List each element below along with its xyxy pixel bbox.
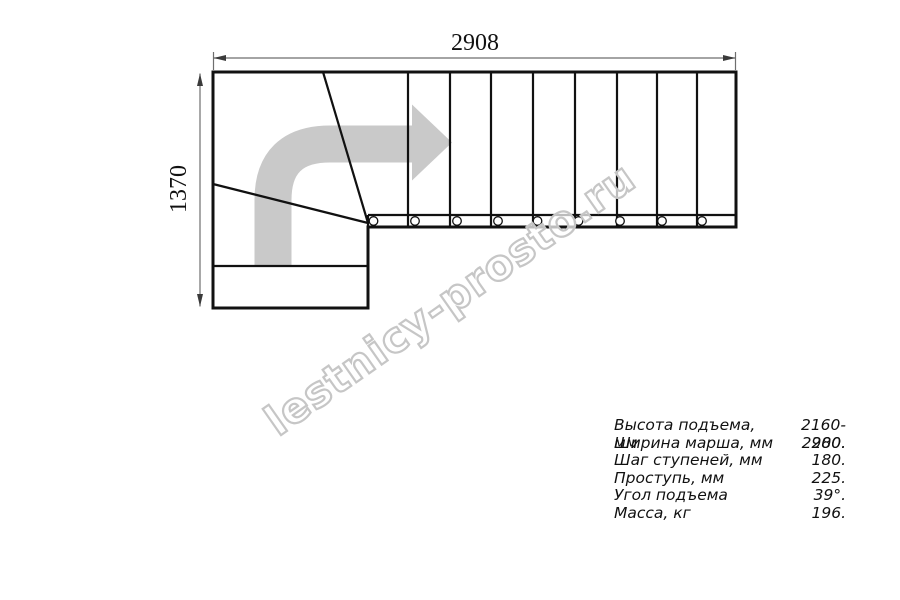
- stringer-hole-icon: [616, 217, 625, 226]
- dim-arrowhead-top-icon: [197, 74, 203, 87]
- specs-table: Высота подъема, мм 2160-2280. Ширина мар…: [614, 417, 846, 522]
- stringer-hole-icon: [698, 217, 707, 226]
- spec-value: 900.: [811, 435, 846, 453]
- spec-label: Масса, кг: [614, 505, 691, 523]
- spec-value: 180.: [811, 452, 846, 470]
- spec-label: Ширина марша, мм: [614, 435, 773, 453]
- stringer-hole-icon: [453, 217, 462, 226]
- top-dimension-label: 2908: [451, 30, 499, 56]
- spec-label: Высота подъема, мм: [614, 417, 766, 435]
- stringer-hole-icon: [494, 217, 503, 226]
- spec-value: 225.: [811, 470, 846, 488]
- spec-row: Ширина марша, мм 900.: [614, 435, 846, 453]
- staircase-drawing-canvas: 2908 1370 lestnicy-prosto.r: [0, 0, 900, 600]
- spec-label: Проступь, мм: [614, 470, 724, 488]
- stringer-hole-icon: [658, 217, 667, 226]
- stringer-hole-icon: [533, 217, 542, 226]
- spec-row: Высота подъема, мм 2160-2280.: [614, 417, 846, 435]
- dim-arrowhead-left-icon: [214, 55, 227, 61]
- spec-value: 39°.: [814, 487, 846, 505]
- stringer-hole-icon: [369, 217, 378, 226]
- spec-label: Угол подъема: [614, 487, 728, 505]
- left-dimension-label: 1370: [166, 165, 192, 213]
- spec-label: Шаг ступеней, мм: [614, 452, 763, 470]
- spec-value: 2160-2280.: [766, 417, 846, 435]
- dim-arrowhead-bottom-icon: [197, 294, 203, 307]
- spec-row: Проступь, мм 225.: [614, 470, 846, 488]
- dim-arrowhead-right-icon: [723, 55, 736, 61]
- spec-row: Шаг ступеней, мм 180.: [614, 452, 846, 470]
- spec-row: Масса, кг 196.: [614, 505, 846, 523]
- spec-value: 196.: [811, 505, 846, 523]
- spec-row: Угол подъема 39°.: [614, 487, 846, 505]
- stringer-hole-icon: [574, 217, 583, 226]
- stringer-hole-icon: [411, 217, 420, 226]
